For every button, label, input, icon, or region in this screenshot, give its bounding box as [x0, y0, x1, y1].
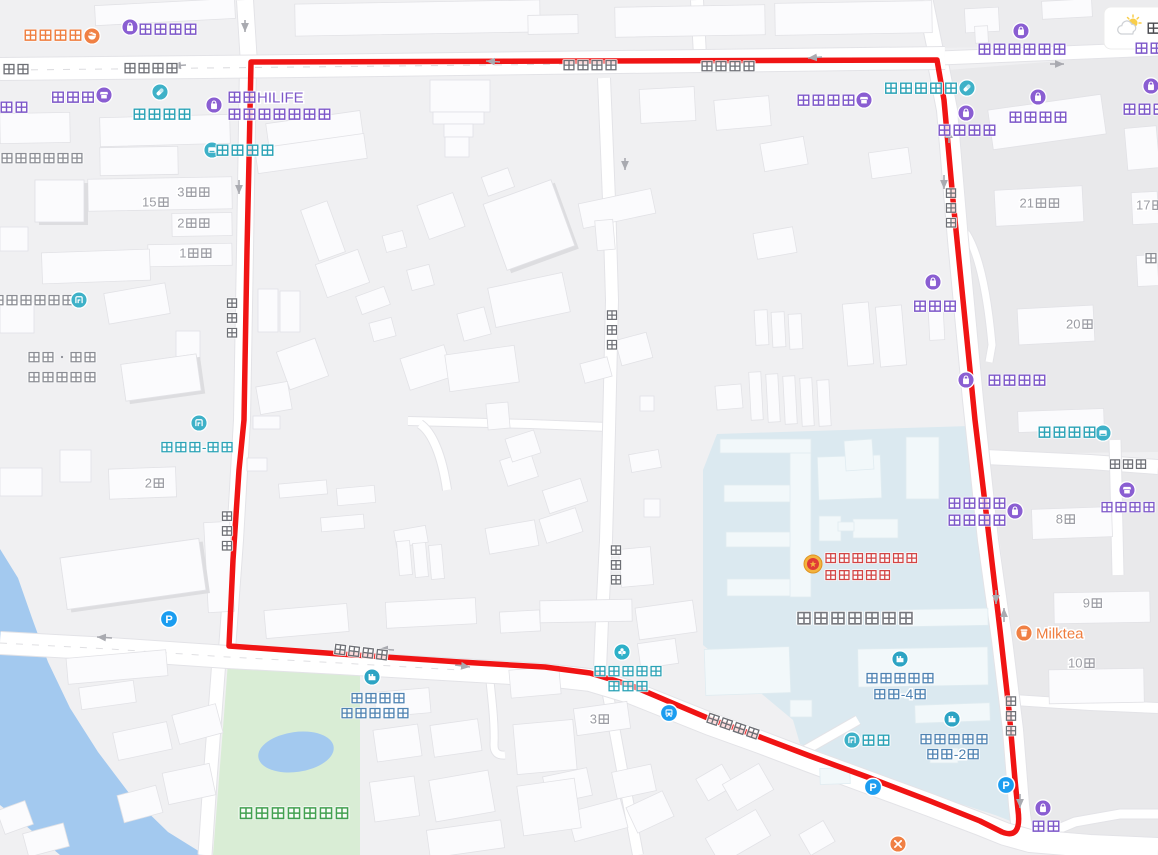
- svg-text:HILIFE: HILIFE: [257, 89, 304, 106]
- svg-text:2: 2: [145, 476, 152, 491]
- svg-text:21: 21: [1020, 196, 1034, 211]
- svg-text:17: 17: [1136, 198, 1150, 213]
- svg-text:2: 2: [177, 216, 184, 231]
- svg-text:-2: -2: [954, 746, 967, 762]
- svg-text:1: 1: [179, 246, 186, 261]
- svg-text:-: -: [202, 439, 207, 455]
- svg-text:-4: -4: [901, 686, 914, 702]
- svg-text:9: 9: [1083, 596, 1090, 611]
- svg-text:20: 20: [1066, 317, 1080, 332]
- svg-text:3: 3: [177, 185, 184, 200]
- svg-text:15: 15: [142, 195, 156, 210]
- svg-text:8: 8: [1056, 512, 1063, 527]
- svg-text:Milktea: Milktea: [1036, 625, 1084, 642]
- svg-text:10: 10: [1068, 656, 1082, 671]
- svg-text:3: 3: [590, 712, 597, 727]
